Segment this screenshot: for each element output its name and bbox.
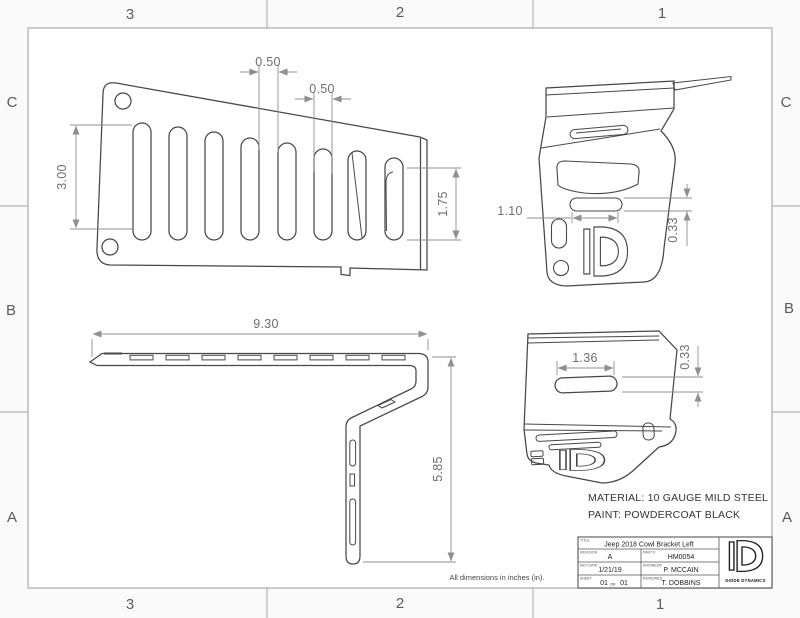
dim-slot-width: 1.36: [572, 351, 598, 365]
zone-label-left-B: B: [6, 302, 16, 319]
rev-date-value: 1/21/19: [598, 567, 621, 574]
paint-note: PAINT: POWDERCOAT BLACK: [588, 509, 740, 521]
dim-slot-gap: 0.50: [255, 55, 281, 69]
drawing-title: Jeep 2018 Cowl Bracket Left: [604, 542, 694, 549]
engineer-value: P. MCCAIN: [663, 567, 698, 574]
zone-label-top-3: 3: [126, 6, 134, 23]
sheet-frame: 3 2 1 3 2 1 C B A C B A: [0, 0, 800, 618]
dim-slot-width: 1.10: [497, 204, 523, 218]
sheet-number: 01: [600, 580, 608, 587]
company-name: DIODE DYNAMICS: [725, 578, 765, 583]
sheet-field-label: SHEET: [580, 577, 593, 581]
revision-value: A: [608, 554, 613, 561]
rev-date-field-label: REV DATE: [580, 564, 598, 568]
reviewed-value: T. DOBBINS: [662, 580, 701, 587]
zone-label-bottom-3: 3: [126, 596, 134, 613]
zone-label-left-C: C: [7, 94, 18, 111]
zone-label-right-C: C: [781, 94, 792, 111]
dim-slot-width: 0.50: [309, 82, 335, 96]
material-note: MATERIAL: 10 GAUGE MILD STEEL: [588, 492, 768, 504]
sheet-total: 01: [620, 580, 628, 587]
title-field-label: TITLE: [580, 539, 590, 543]
zone-label-top-2: 2: [396, 4, 404, 21]
dim-slot-height: 0.33: [666, 217, 680, 243]
dim-length: 9.30: [253, 317, 279, 331]
sheet-of-label: OF: [610, 583, 616, 587]
drawing-sheet: 3 2 1 3 2 1 C B A C B A: [0, 0, 800, 618]
dim-end-slot-height: 1.75: [436, 191, 450, 217]
engineering-drawing-page: 3 2 1 3 2 1 C B A C B A: [0, 0, 800, 618]
sheet-border: [28, 28, 772, 588]
dim-height: 5.85: [431, 456, 445, 482]
part-field-label: PART #: [643, 551, 655, 555]
zone-label-right-A: A: [782, 509, 792, 526]
zone-label-left-A: A: [7, 509, 17, 526]
title-block: TITLE Jeep 2018 Cowl Bracket Left REVISI…: [578, 537, 772, 588]
dim-slot-height: 0.33: [678, 344, 692, 370]
revision-field-label: REVISION: [580, 551, 598, 555]
zone-label-top-1: 1: [658, 5, 666, 22]
zone-label-bottom-2: 2: [396, 595, 404, 612]
dim-slot-height: 3.00: [55, 164, 69, 190]
zone-label-bottom-1: 1: [656, 596, 664, 613]
zone-label-right-B: B: [784, 300, 794, 317]
units-note: All dimensions in inches (in).: [449, 573, 544, 582]
engineer-field-label: ENGINEER: [643, 564, 662, 568]
part-number-value: HM0054: [668, 554, 695, 561]
reviewed-field-label: REVIEWED: [643, 577, 663, 581]
